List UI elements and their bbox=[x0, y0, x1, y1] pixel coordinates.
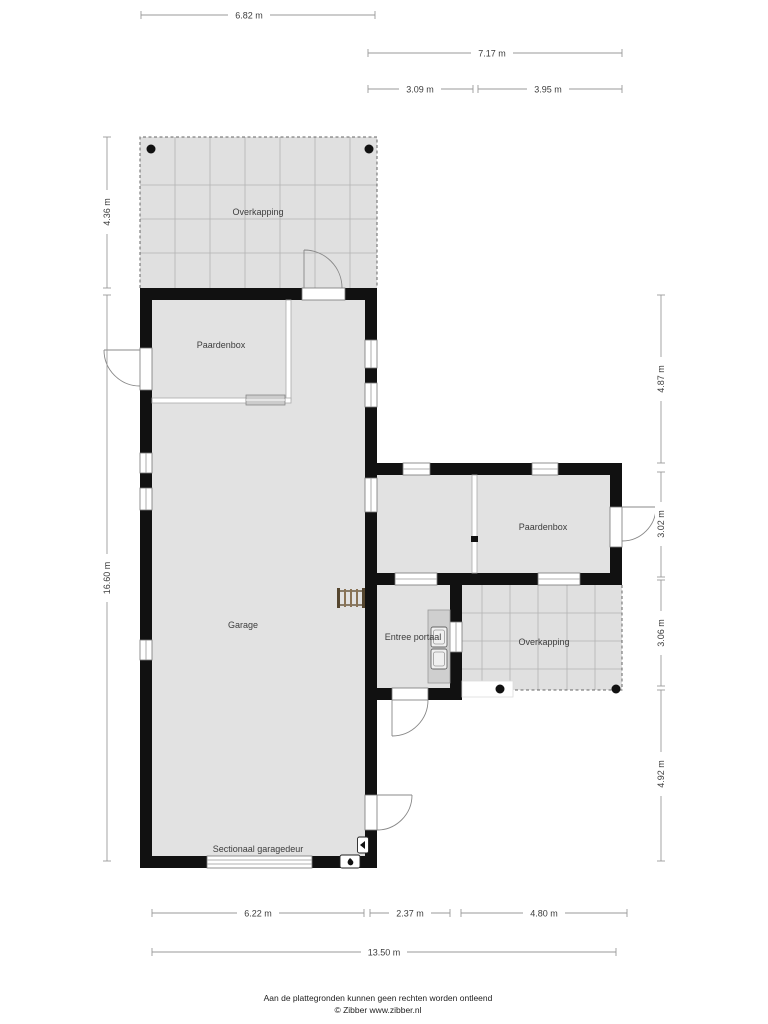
room-label-overkapping-right: Overkapping bbox=[518, 637, 569, 647]
svg-text:4.87 m: 4.87 m bbox=[656, 365, 666, 393]
room-label-paardenbox-left: Paardenbox bbox=[197, 340, 246, 350]
main-building-block bbox=[140, 288, 377, 868]
wing-right-door-swing bbox=[622, 507, 656, 541]
heater-icon bbox=[340, 855, 360, 868]
wall-unit-icon bbox=[358, 837, 369, 853]
paardenbox-partition-vertical bbox=[286, 300, 291, 400]
wing-right-door-opening bbox=[610, 507, 622, 547]
footer-credit: © Zibber www.zibber.nl bbox=[334, 1005, 421, 1015]
room-label-entree-portaal: Entree portaal bbox=[385, 632, 442, 642]
footer-disclaimer: Aan de plattegronden kunnen geen rechten… bbox=[264, 993, 493, 1003]
dim-top-main: 6.82 m bbox=[141, 9, 375, 21]
dim-left-overkapping: 4.36 m bbox=[101, 137, 113, 288]
room-label-overkapping-top: Overkapping bbox=[232, 207, 283, 217]
left-door-swing bbox=[104, 350, 140, 386]
dim-bottom-entree: 2.37 m bbox=[370, 907, 450, 919]
svg-text:3.09 m: 3.09 m bbox=[406, 85, 434, 95]
svg-text:3.02 m: 3.02 m bbox=[656, 510, 666, 538]
canopy-post bbox=[365, 145, 374, 154]
room-label-paardenbox-right: Paardenbox bbox=[519, 522, 568, 532]
canopy-post bbox=[147, 145, 156, 154]
svg-text:6.82 m: 6.82 m bbox=[235, 11, 263, 21]
svg-text:2.37 m: 2.37 m bbox=[396, 909, 424, 919]
svg-text:16.60 m: 16.60 m bbox=[102, 562, 112, 595]
entree-sink-counter bbox=[428, 610, 450, 683]
overkapping-top-area: Overkapping bbox=[140, 137, 377, 288]
dim-right-upper-gap: 4.87 m bbox=[655, 295, 667, 463]
svg-text:6.22 m: 6.22 m bbox=[244, 909, 272, 919]
right-wing bbox=[365, 463, 622, 585]
dim-right-wing: 3.02 m bbox=[655, 472, 667, 577]
dim-bottom-total: 13.50 m bbox=[152, 946, 616, 958]
svg-text:3.06 m: 3.06 m bbox=[656, 619, 666, 647]
wing-floor bbox=[377, 475, 610, 573]
room-label-garage: Garage bbox=[228, 620, 258, 630]
svg-text:7.17 m: 7.17 m bbox=[478, 49, 506, 59]
dim-right-overkapping: 3.06 m bbox=[655, 580, 667, 686]
svg-text:4.80 m: 4.80 m bbox=[530, 909, 558, 919]
top-door-opening bbox=[302, 288, 345, 300]
sectional-garage-door bbox=[207, 856, 312, 868]
floor-plan-drawing: Overkapping Overkapping bbox=[0, 0, 768, 1024]
svg-text:4.36 m: 4.36 m bbox=[102, 198, 112, 226]
dim-top-wing-total: 7.17 m bbox=[368, 47, 622, 59]
garage-side-door-swing bbox=[377, 795, 412, 830]
garage-floor bbox=[152, 300, 365, 856]
overkapping-right-area: Overkapping bbox=[462, 585, 622, 697]
label-sectional-garage-door: Sectionaal garagedeur bbox=[213, 844, 304, 854]
dim-bottom-garage: 6.22 m bbox=[152, 907, 364, 919]
svg-text:13.50 m: 13.50 m bbox=[368, 948, 401, 958]
footer: Aan de plattegronden kunnen geen rechten… bbox=[264, 993, 493, 1015]
canopy-post bbox=[496, 685, 505, 694]
canopy-step bbox=[462, 681, 513, 697]
garage-side-door-opening bbox=[365, 795, 377, 830]
left-door-opening bbox=[140, 348, 152, 390]
canopy-post bbox=[612, 685, 621, 694]
wing-partition bbox=[472, 475, 477, 573]
dim-left-total: 16.60 m bbox=[101, 295, 113, 861]
dim-top-wing-left: 3.09 m bbox=[368, 83, 473, 95]
floor-plan-page: Overkapping Overkapping bbox=[0, 0, 768, 1024]
wing-partition-post bbox=[471, 536, 478, 542]
dim-bottom-overkapping: 4.80 m bbox=[461, 907, 627, 919]
entree-door-swing bbox=[392, 700, 428, 736]
dim-right-lower: 4.92 m bbox=[655, 690, 667, 861]
svg-text:3.95 m: 3.95 m bbox=[534, 85, 562, 95]
svg-text:4.92 m: 4.92 m bbox=[656, 760, 666, 788]
entree-door-opening bbox=[392, 688, 428, 700]
dim-top-wing-right: 3.95 m bbox=[478, 83, 622, 95]
